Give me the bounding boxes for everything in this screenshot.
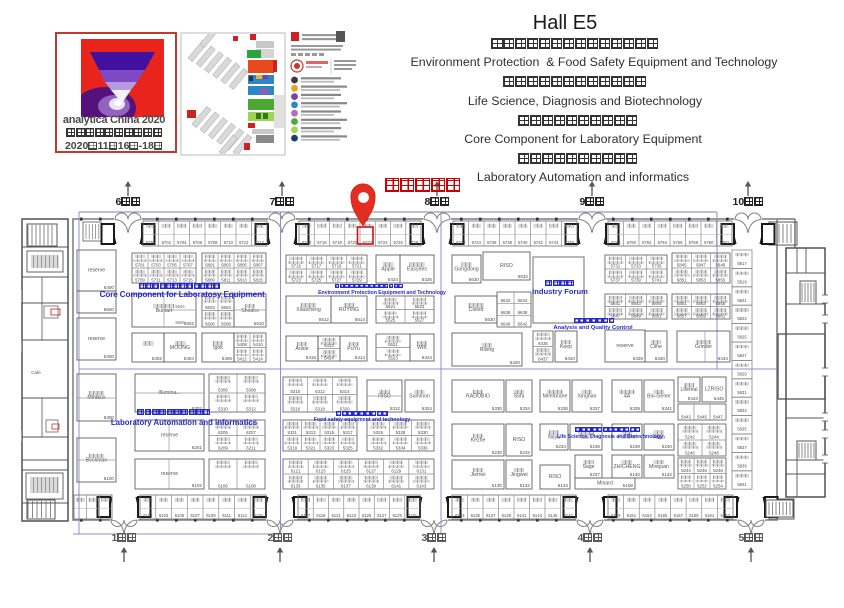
svg-text:5317: 5317 bbox=[343, 430, 353, 435]
svg-text:5312: 5312 bbox=[315, 389, 325, 394]
svg-text:5728: 5728 bbox=[409, 240, 419, 245]
svg-text:6100: 6100 bbox=[104, 476, 115, 481]
svg-text:6135: 6135 bbox=[316, 484, 326, 489]
svg-text:5752: 5752 bbox=[642, 240, 652, 245]
svg-text:5248: 5248 bbox=[709, 451, 719, 456]
svg-text:Cilhe: Cilhe bbox=[650, 344, 662, 350]
svg-text:6143: 6143 bbox=[533, 513, 543, 518]
svg-text:5319: 5319 bbox=[287, 446, 297, 451]
svg-text:6121: 6121 bbox=[331, 513, 341, 518]
svg-text:5250: 5250 bbox=[681, 484, 691, 489]
svg-text:6420: 6420 bbox=[510, 360, 521, 365]
svg-text:6141: 6141 bbox=[517, 513, 527, 518]
svg-text:5313: 5313 bbox=[306, 430, 316, 435]
svg-text:ZHICHENG: ZHICHENG bbox=[613, 464, 640, 470]
svg-text:5244: 5244 bbox=[681, 468, 691, 473]
svg-text:5801: 5801 bbox=[205, 263, 215, 268]
svg-text:6125: 6125 bbox=[341, 469, 351, 474]
svg-text:5602: 5602 bbox=[205, 305, 215, 310]
svg-text:5610: 5610 bbox=[254, 321, 265, 326]
svg-text:5130: 5130 bbox=[492, 483, 503, 488]
svg-text:6107: 6107 bbox=[190, 513, 200, 518]
svg-text:5406: 5406 bbox=[222, 356, 233, 361]
svg-text:Cafe: Cafe bbox=[31, 370, 41, 375]
svg-text:6145: 6145 bbox=[548, 513, 558, 518]
svg-text:6153: 6153 bbox=[642, 513, 652, 518]
svg-text:5311: 5311 bbox=[288, 430, 298, 435]
svg-text:6439: 6439 bbox=[633, 356, 644, 361]
svg-text:5140: 5140 bbox=[630, 472, 641, 477]
svg-text:Igok: Igok bbox=[213, 345, 223, 351]
svg-text:5837: 5837 bbox=[737, 445, 747, 450]
svg-text:5807: 5807 bbox=[253, 263, 263, 268]
svg-text:5724: 5724 bbox=[378, 240, 388, 245]
svg-text:5339: 5339 bbox=[630, 406, 641, 411]
svg-text:reserve: reserve bbox=[88, 268, 105, 274]
svg-text:PuYu: PuYu bbox=[347, 346, 360, 352]
svg-text:6127: 6127 bbox=[366, 469, 376, 474]
svg-text:5412: 5412 bbox=[237, 357, 247, 362]
svg-text:5841: 5841 bbox=[610, 301, 620, 306]
svg-text:Grinder: Grinder bbox=[695, 344, 713, 350]
svg-text:5334: 5334 bbox=[396, 446, 406, 451]
svg-text:5108: 5108 bbox=[623, 483, 634, 488]
svg-text:5321: 5321 bbox=[306, 446, 316, 451]
svg-text:5853: 5853 bbox=[696, 301, 706, 306]
svg-text:5715: 5715 bbox=[291, 264, 301, 269]
svg-text:5332: 5332 bbox=[373, 446, 383, 451]
svg-text:5248: 5248 bbox=[713, 468, 723, 473]
svg-text:Sofa: Sofa bbox=[514, 394, 525, 400]
svg-text:5408: 5408 bbox=[237, 342, 247, 347]
svg-text:5827: 5827 bbox=[737, 353, 747, 358]
svg-text:5415: 5415 bbox=[306, 355, 317, 360]
svg-text:5849: 5849 bbox=[715, 263, 725, 268]
svg-text:5708: 5708 bbox=[208, 240, 218, 245]
svg-text:5726: 5726 bbox=[393, 240, 403, 245]
svg-text:6109: 6109 bbox=[206, 513, 216, 518]
svg-text:5308: 5308 bbox=[246, 388, 256, 393]
svg-text:5833: 5833 bbox=[737, 408, 747, 413]
svg-text:6131: 6131 bbox=[408, 513, 418, 518]
svg-text:5803: 5803 bbox=[221, 263, 231, 268]
svg-text:6151: 6151 bbox=[627, 513, 637, 518]
svg-text:5855: 5855 bbox=[715, 301, 725, 306]
svg-text:Jiemei: Jiemei bbox=[471, 472, 486, 478]
svg-text:5306: 5306 bbox=[218, 388, 228, 393]
svg-text:6155: 6155 bbox=[658, 513, 668, 518]
svg-text:5748: 5748 bbox=[611, 240, 621, 245]
svg-text:6133: 6133 bbox=[455, 513, 465, 518]
svg-text:6437: 6437 bbox=[538, 357, 548, 362]
svg-text:6133: 6133 bbox=[291, 484, 301, 489]
svg-text:6161: 6161 bbox=[705, 513, 715, 518]
svg-text:5817: 5817 bbox=[737, 261, 747, 266]
svg-text:6137: 6137 bbox=[486, 513, 496, 518]
svg-text:4A: 4A bbox=[624, 394, 631, 400]
svg-text:Beckman: Beckman bbox=[86, 458, 108, 464]
svg-text:6143: 6143 bbox=[417, 484, 427, 489]
svg-text:reserve: reserve bbox=[161, 471, 178, 477]
svg-text:5404: 5404 bbox=[184, 356, 195, 361]
svg-text:5740: 5740 bbox=[518, 240, 528, 245]
svg-text:Rising: Rising bbox=[480, 347, 495, 353]
svg-text:reserve: reserve bbox=[616, 343, 633, 349]
svg-text:5521: 5521 bbox=[388, 342, 398, 347]
svg-text:6149: 6149 bbox=[611, 513, 621, 518]
svg-text:5736: 5736 bbox=[487, 240, 497, 245]
svg-text:5445: 5445 bbox=[714, 396, 725, 401]
svg-text:Shodex: Shodex bbox=[241, 308, 259, 314]
svg-text:6209: 6209 bbox=[218, 446, 228, 451]
svg-text:WIK: WIK bbox=[417, 345, 427, 351]
svg-text:6123: 6123 bbox=[316, 469, 326, 474]
svg-text:6137: 6137 bbox=[341, 484, 351, 489]
svg-text:5706: 5706 bbox=[193, 240, 203, 245]
svg-text:5237: 5237 bbox=[590, 472, 601, 477]
svg-text:5731: 5731 bbox=[610, 264, 620, 269]
svg-text:5134: 5134 bbox=[558, 483, 569, 488]
svg-text:5523: 5523 bbox=[388, 356, 398, 361]
svg-text:5246: 5246 bbox=[697, 468, 707, 473]
svg-text:5702: 5702 bbox=[162, 240, 172, 245]
svg-text:5762: 5762 bbox=[720, 240, 730, 245]
svg-text:5742: 5742 bbox=[534, 240, 544, 245]
svg-text:5705: 5705 bbox=[167, 263, 177, 268]
svg-text:5843: 5843 bbox=[631, 301, 641, 306]
svg-text:6113: 6113 bbox=[238, 513, 248, 518]
svg-text:5825: 5825 bbox=[737, 335, 747, 340]
svg-text:5754: 5754 bbox=[658, 240, 668, 245]
svg-text:5851: 5851 bbox=[677, 301, 687, 306]
svg-text:6163: 6163 bbox=[721, 513, 731, 518]
svg-text:5512: 5512 bbox=[319, 317, 330, 322]
svg-text:5744: 5744 bbox=[549, 240, 559, 245]
svg-text:6119: 6119 bbox=[316, 513, 326, 518]
svg-text:Xinghan: Xinghan bbox=[577, 394, 596, 400]
svg-text:5443: 5443 bbox=[688, 396, 699, 401]
svg-text:5719: 5719 bbox=[332, 264, 342, 269]
svg-text:Bio-Gener: Bio-Gener bbox=[647, 394, 671, 400]
svg-text:6139: 6139 bbox=[502, 513, 512, 518]
svg-text:6135: 6135 bbox=[471, 513, 481, 518]
svg-text:5132: 5132 bbox=[520, 483, 531, 488]
svg-text:6111: 6111 bbox=[222, 513, 231, 518]
svg-text:5414: 5414 bbox=[324, 356, 334, 361]
svg-text:Jingwei: Jingwei bbox=[510, 472, 527, 478]
svg-text:Lifereal: Lifereal bbox=[680, 387, 697, 393]
svg-text:5839: 5839 bbox=[737, 463, 747, 468]
svg-text:5504: 5504 bbox=[175, 304, 185, 309]
svg-text:5506: 5506 bbox=[175, 320, 185, 325]
svg-text:5734: 5734 bbox=[472, 240, 482, 245]
svg-text:6444: 6444 bbox=[718, 356, 729, 361]
svg-text:5700: 5700 bbox=[146, 240, 156, 245]
svg-text:5604: 5604 bbox=[221, 305, 231, 310]
svg-text:5400: 5400 bbox=[104, 354, 115, 359]
svg-text:5732: 5732 bbox=[456, 240, 466, 245]
svg-text:5805: 5805 bbox=[237, 263, 247, 268]
svg-text:6106: 6106 bbox=[218, 484, 228, 489]
svg-text:Summon: Summon bbox=[409, 394, 430, 400]
svg-text:6157: 6157 bbox=[674, 513, 684, 518]
svg-text:6159: 6159 bbox=[689, 513, 699, 518]
svg-text:Sage: Sage bbox=[582, 464, 594, 470]
svg-text:6435: 6435 bbox=[538, 341, 548, 346]
svg-text:RISO: RISO bbox=[549, 474, 562, 480]
svg-text:5325: 5325 bbox=[343, 446, 353, 451]
svg-text:6139: 6139 bbox=[366, 484, 376, 489]
svg-text:RADOBIO: RADOBIO bbox=[466, 394, 490, 400]
svg-text:5239: 5239 bbox=[630, 444, 641, 449]
svg-text:MOONG: MOONG bbox=[170, 345, 190, 351]
svg-text:RISO: RISO bbox=[500, 263, 513, 269]
svg-text:Anioe: Anioe bbox=[295, 346, 308, 352]
svg-text:6125: 6125 bbox=[362, 513, 372, 518]
svg-text:6129: 6129 bbox=[392, 513, 402, 518]
svg-text:5323: 5323 bbox=[324, 446, 334, 451]
svg-text:5714: 5714 bbox=[302, 240, 312, 245]
svg-text:6117: 6117 bbox=[301, 513, 311, 518]
svg-text:6131: 6131 bbox=[417, 469, 427, 474]
svg-text:5712: 5712 bbox=[239, 240, 249, 245]
svg-text:Minquan: Minquan bbox=[649, 464, 669, 470]
svg-text:6121: 6121 bbox=[291, 469, 301, 474]
svg-text:5414: 5414 bbox=[253, 357, 263, 362]
svg-text:5735: 5735 bbox=[652, 264, 662, 269]
svg-text:Xiaucheng: Xiaucheng bbox=[296, 307, 321, 313]
svg-text:5750: 5750 bbox=[627, 240, 637, 245]
svg-text:5717: 5717 bbox=[311, 264, 321, 269]
svg-text:5234: 5234 bbox=[556, 444, 567, 449]
svg-text:Membrane: Membrane bbox=[543, 394, 568, 400]
svg-text:5232: 5232 bbox=[520, 450, 531, 455]
svg-text:5716: 5716 bbox=[317, 240, 327, 245]
svg-text:5424: 5424 bbox=[422, 355, 433, 360]
svg-text:reserve: reserve bbox=[161, 433, 178, 439]
svg-text:6600: 6600 bbox=[104, 307, 115, 312]
svg-text:5738: 5738 bbox=[503, 240, 513, 245]
svg-text:5746: 5746 bbox=[565, 240, 575, 245]
svg-text:5246: 5246 bbox=[685, 451, 695, 456]
svg-text:RISO: RISO bbox=[378, 394, 391, 400]
svg-text:5608: 5608 bbox=[221, 322, 231, 327]
svg-text:5841: 5841 bbox=[737, 482, 747, 487]
svg-text:Minard: Minard bbox=[597, 481, 613, 487]
svg-text:6127: 6127 bbox=[377, 513, 387, 518]
svg-text:5142: 5142 bbox=[662, 472, 673, 477]
svg-text:6115: 6115 bbox=[254, 513, 264, 518]
svg-text:6108: 6108 bbox=[246, 484, 256, 489]
svg-text:5760: 5760 bbox=[704, 240, 714, 245]
svg-text:5315: 5315 bbox=[324, 430, 334, 435]
svg-text:6205: 6205 bbox=[218, 430, 228, 435]
svg-text:6123: 6123 bbox=[347, 513, 357, 518]
svg-text:5230: 5230 bbox=[492, 450, 503, 455]
svg-text:Keep: Keep bbox=[560, 344, 572, 350]
svg-text:6105: 6105 bbox=[175, 513, 185, 518]
svg-text:5336: 5336 bbox=[418, 446, 428, 451]
svg-text:5240: 5240 bbox=[662, 444, 673, 449]
svg-text:5414: 5414 bbox=[355, 355, 366, 360]
svg-text:6141: 6141 bbox=[391, 484, 401, 489]
svg-text:5703: 5703 bbox=[151, 263, 161, 268]
svg-text:5733: 5733 bbox=[631, 264, 641, 269]
svg-text:5402: 5402 bbox=[152, 356, 163, 361]
svg-text:6103: 6103 bbox=[159, 513, 169, 518]
svg-text:5720: 5720 bbox=[348, 240, 358, 245]
svg-text:5236: 5236 bbox=[590, 444, 601, 449]
svg-text:5412: 5412 bbox=[324, 343, 334, 348]
svg-text:5310: 5310 bbox=[290, 389, 300, 394]
svg-text:6129: 6129 bbox=[391, 469, 401, 474]
svg-text:5701: 5701 bbox=[135, 263, 145, 268]
svg-text:5254: 5254 bbox=[713, 484, 723, 489]
svg-text:LZRISO: LZRISO bbox=[705, 387, 724, 393]
svg-text:5606: 5606 bbox=[205, 322, 215, 327]
svg-text:5252: 5252 bbox=[697, 484, 707, 489]
svg-text:reserve: reserve bbox=[88, 336, 105, 342]
svg-text:5721: 5721 bbox=[352, 264, 362, 269]
svg-text:6147: 6147 bbox=[564, 513, 574, 518]
svg-text:5707: 5707 bbox=[183, 263, 193, 268]
svg-text:5756: 5756 bbox=[673, 240, 683, 245]
svg-text:6207: 6207 bbox=[246, 430, 256, 435]
svg-text:5758: 5758 bbox=[689, 240, 699, 245]
svg-text:5831: 5831 bbox=[737, 390, 747, 395]
svg-text:5718: 5718 bbox=[332, 240, 342, 245]
svg-text:5341: 5341 bbox=[662, 406, 673, 411]
svg-text:5845: 5845 bbox=[652, 301, 662, 306]
svg-text:5410: 5410 bbox=[253, 342, 263, 347]
svg-text:5704: 5704 bbox=[177, 240, 187, 245]
svg-text:6434: 6434 bbox=[565, 356, 576, 361]
svg-text:6101: 6101 bbox=[143, 513, 153, 518]
svg-text:5314: 5314 bbox=[340, 389, 350, 394]
svg-text:5845: 5845 bbox=[677, 263, 687, 268]
svg-text:5502: 5502 bbox=[184, 321, 195, 326]
svg-text:6102: 6102 bbox=[192, 483, 203, 488]
svg-text:6440: 6440 bbox=[655, 356, 666, 361]
svg-text:5710: 5710 bbox=[224, 240, 234, 245]
svg-text:6201: 6201 bbox=[192, 445, 203, 450]
svg-text:5714: 5714 bbox=[255, 240, 265, 245]
svg-text:5847: 5847 bbox=[696, 263, 706, 268]
svg-text:6211: 6211 bbox=[246, 446, 256, 451]
svg-text:5829: 5829 bbox=[737, 371, 747, 376]
